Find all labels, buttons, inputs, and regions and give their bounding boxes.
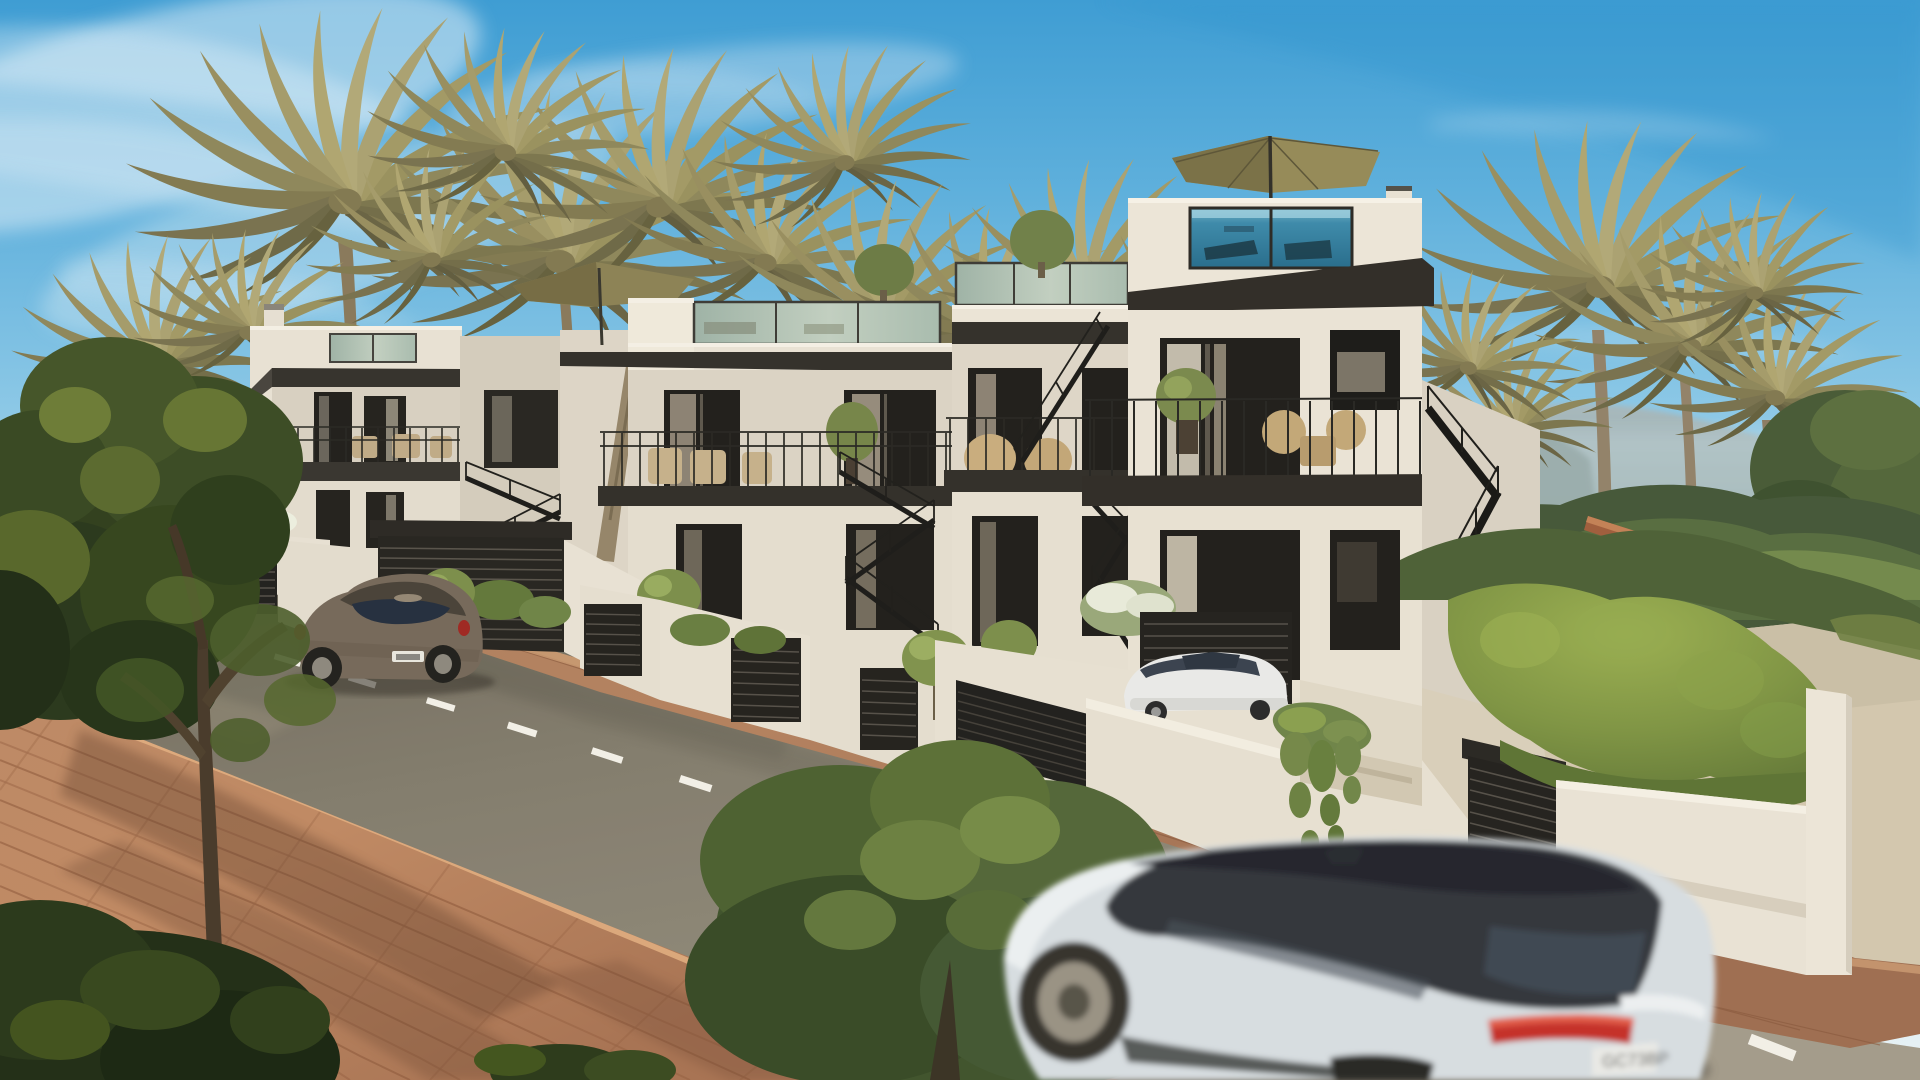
svg-text:GC73BP: GC73BP — [1602, 1049, 1670, 1071]
